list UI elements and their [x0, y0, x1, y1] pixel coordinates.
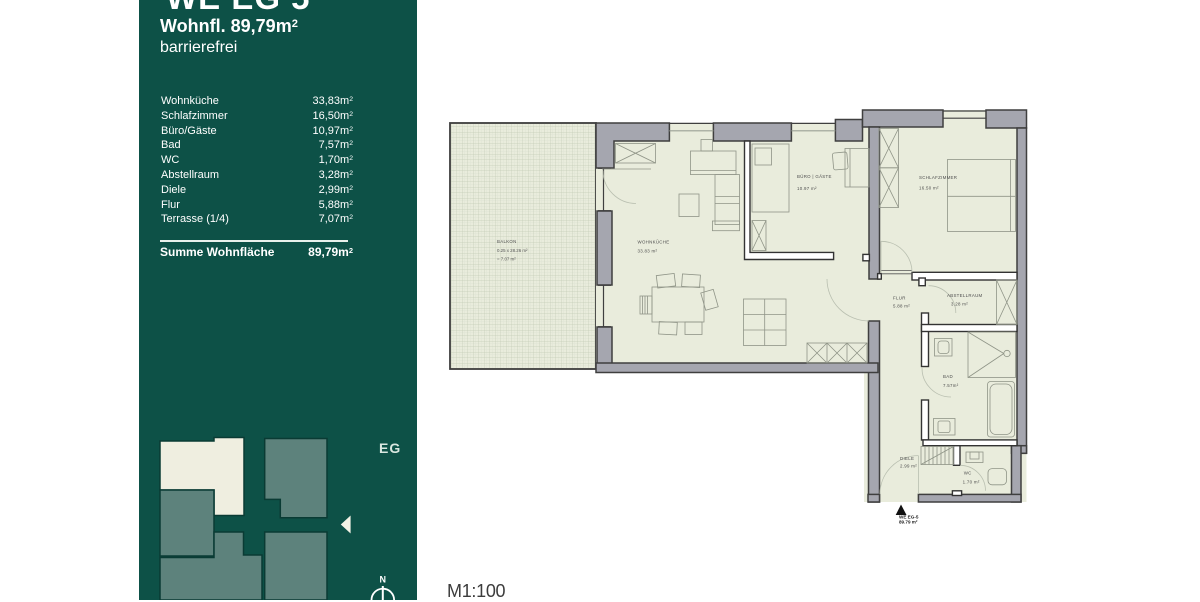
- svg-text:BÜRO | GÄSTE: BÜRO | GÄSTE: [797, 174, 832, 179]
- svg-text:= 7.07 m²: = 7.07 m²: [497, 257, 516, 262]
- svg-text:N: N: [380, 575, 387, 585]
- svg-text:1.70 m²: 1.70 m²: [963, 480, 980, 485]
- svg-text:7.57m²: 7.57m²: [943, 383, 959, 388]
- svg-text:16.50 m²: 16.50 m²: [919, 186, 939, 191]
- svg-text:89.79 m²: 89.79 m²: [899, 520, 918, 525]
- svg-text:2.99 m²: 2.99 m²: [900, 464, 917, 469]
- svg-text:33.83 m²: 33.83 m²: [638, 249, 658, 254]
- svg-text:DIELE: DIELE: [900, 456, 914, 461]
- svg-text:FLUR: FLUR: [893, 296, 906, 301]
- svg-text:3.28 m²: 3.28 m²: [951, 302, 968, 307]
- svg-text:BAD: BAD: [943, 374, 953, 379]
- svg-text:0.25 x 28.26 m²: 0.25 x 28.26 m²: [497, 248, 528, 253]
- svg-text:5.88 m²: 5.88 m²: [893, 304, 910, 309]
- svg-text:WOHNKÜCHE: WOHNKÜCHE: [638, 240, 670, 245]
- svg-text:BALKON: BALKON: [497, 239, 517, 244]
- svg-text:ABSTELLRAUM: ABSTELLRAUM: [947, 293, 983, 298]
- svg-text:10.97 m²: 10.97 m²: [797, 186, 817, 191]
- svg-text:SCHLAFZIMMER: SCHLAFZIMMER: [919, 175, 957, 180]
- svg-text:WC: WC: [964, 471, 972, 476]
